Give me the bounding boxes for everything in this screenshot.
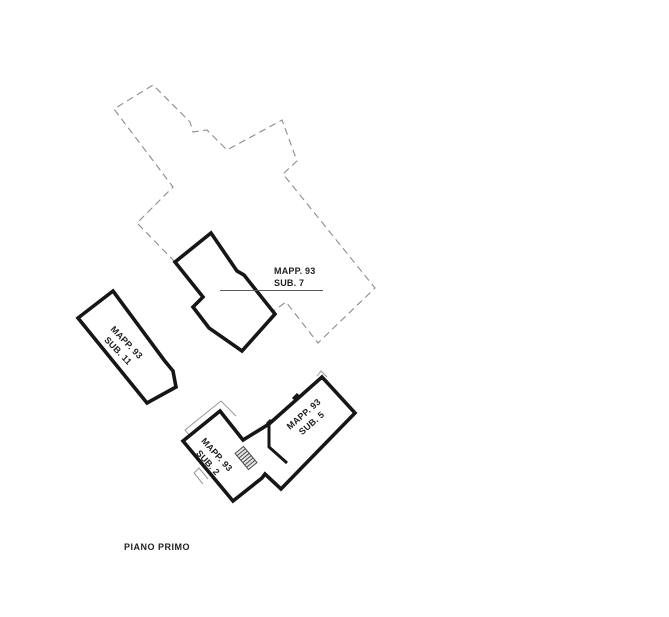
label-parcel-sub7-line1: MAPP. 93 [274,266,315,278]
floor-title-text: PIANO PRIMO [124,542,190,554]
label-parcel-sub7-line2: SUB. 7 [274,278,315,290]
parcel-sub7-outline [175,233,275,351]
floor-plan-canvas: MAPP. 93 SUB. 7 MAPP. 93 SUB. 11 MAPP. 9… [0,0,669,617]
floor-title: PIANO PRIMO [124,542,190,554]
floor-plan-drawing [0,0,669,617]
label-parcel-sub7: MAPP. 93 SUB. 7 [274,266,315,289]
